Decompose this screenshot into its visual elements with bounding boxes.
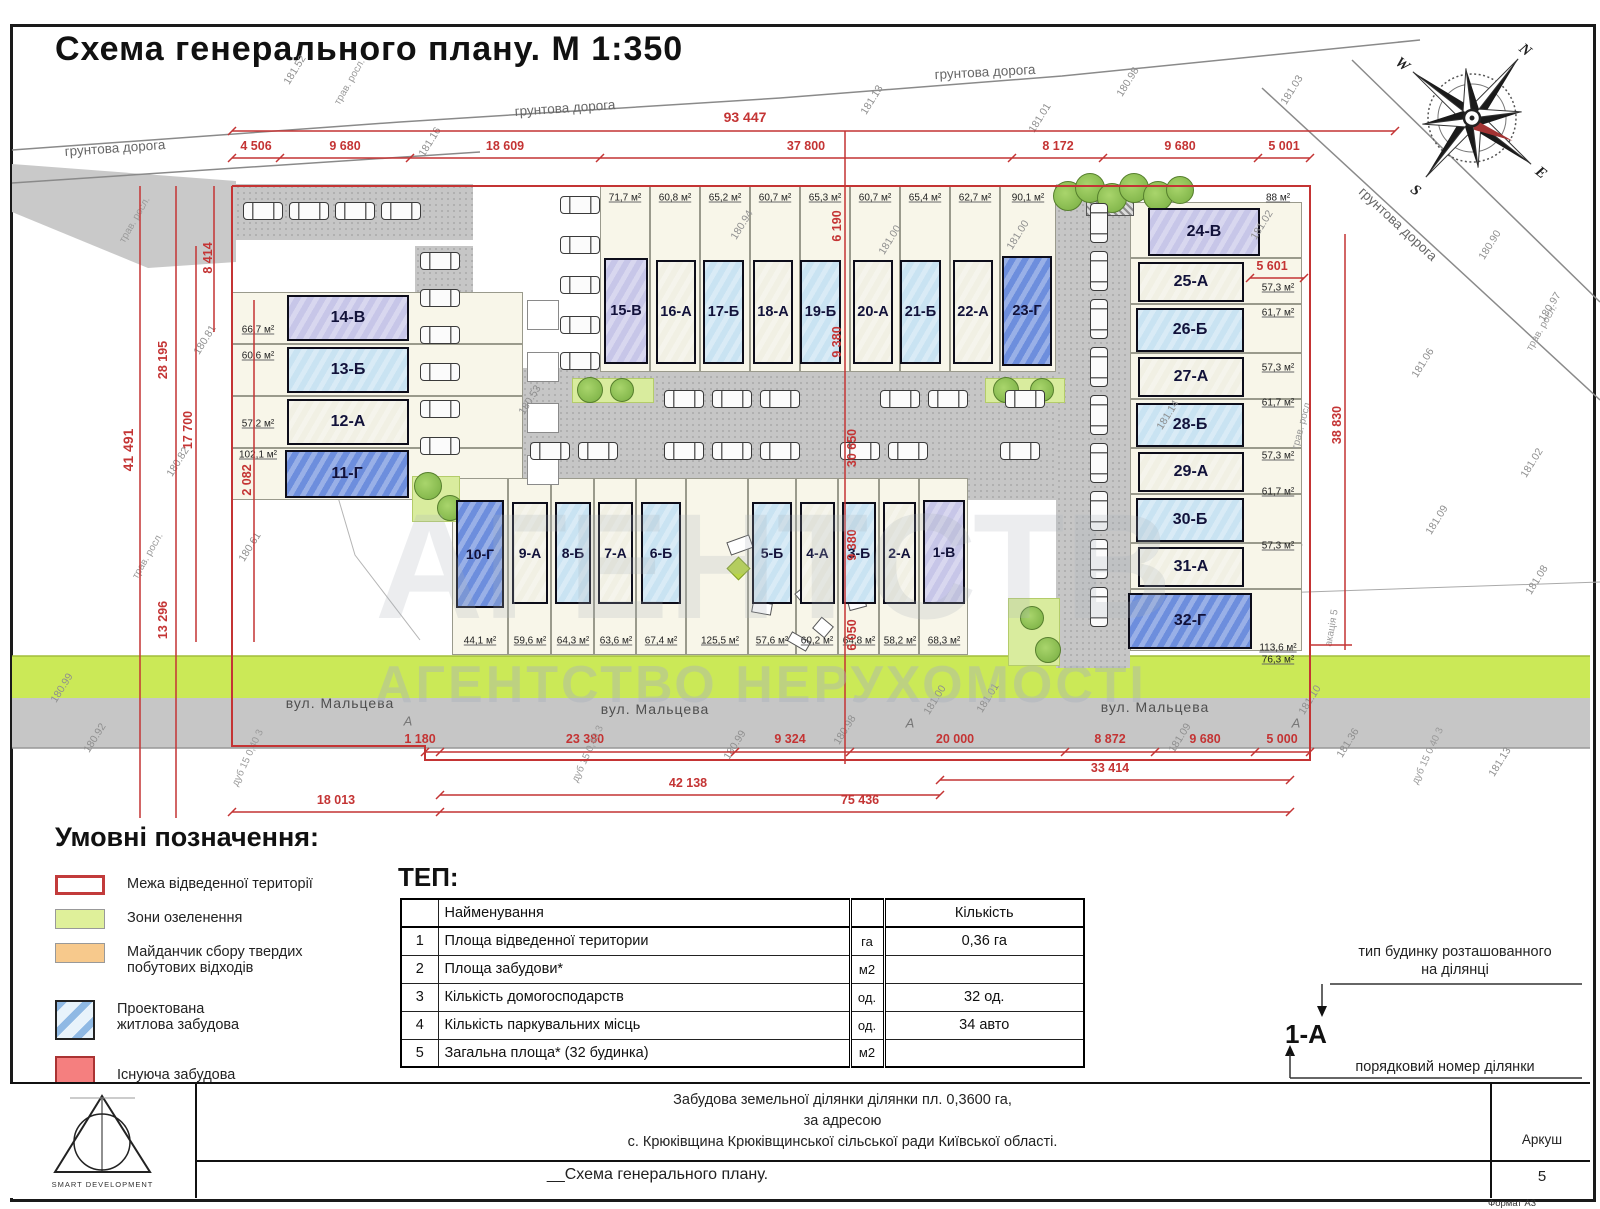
tep-row: 5Загальна площа* (32 будинка)м2 <box>401 1039 1084 1067</box>
waste-swatch-icon <box>55 943 105 963</box>
title-block: SMART DEVELOPMENT Забудова земельної діл… <box>10 1082 1590 1198</box>
boundary-swatch-icon <box>55 875 105 895</box>
legend-item-label: Межа відведенної території <box>127 875 313 892</box>
type-note-top2: на ділянці <box>1421 962 1489 978</box>
legend-item-greenery: Зони озеленення <box>55 909 395 929</box>
legend-item-boundary: Межа відведенної території <box>55 875 395 895</box>
greenery-swatch-icon <box>55 909 105 929</box>
tep-row: 4Кількість паркувальних місцьод.34 авто <box>401 1011 1084 1039</box>
legend: Умовні позначення: Межа відведенної тери… <box>55 822 395 1110</box>
tep-col-qty: Кількість <box>884 899 1084 927</box>
legend-item-waste: Майданчик сбору твердих побутових відход… <box>55 943 395 976</box>
sheet-number: 5 <box>1492 1168 1592 1185</box>
tep-header-row: Найменування Кількість <box>401 899 1084 927</box>
arrow-down-icon <box>1317 1006 1327 1017</box>
legend-item-label: Майданчик сбору твердих побутових відход… <box>127 943 303 976</box>
tep-row: 2Площа забудови*м2 <box>401 955 1084 983</box>
project-address: Забудова земельної ділянки ділянки пл. 0… <box>195 1090 1490 1153</box>
legend-heading: Умовні позначення: <box>55 822 395 853</box>
projected-housing-swatch-icon <box>55 1000 95 1040</box>
type-note-top: тип будинку розташованного <box>1358 944 1551 960</box>
sheet-label: Аркуш <box>1492 1132 1592 1147</box>
type-note-code: 1-А <box>1285 1019 1327 1049</box>
sheet-cell: Аркуш 5 <box>1490 1084 1592 1198</box>
legend-item-label: Зони озеленення <box>127 909 242 926</box>
plot-type-annotation: тип будинку розташованного на ділянці 1-… <box>1230 938 1590 1088</box>
page-title: Схема генерального плану. М 1:350 <box>55 30 683 69</box>
tep-row: 1Площа відведенної териториига0,36 га <box>401 927 1084 955</box>
tep-col-name: Найменування <box>438 899 850 927</box>
legend-item-projected: Проектована житлова забудова <box>55 1000 395 1040</box>
legend-item-label: Проектована житлова забудова <box>117 1000 239 1033</box>
document-title: __Схема генерального плану. <box>10 1166 1305 1184</box>
tep-heading: ТЕП: <box>398 862 459 893</box>
tep-table: Найменування Кількість 1Площа відведенно… <box>400 898 1085 1068</box>
type-note-bottom: порядковий номер ділянки <box>1355 1059 1534 1075</box>
legend-item-label: Існуюча забудова <box>117 1056 235 1083</box>
tep-row: 3Кількість домогосподарствод.32 од. <box>401 983 1084 1011</box>
